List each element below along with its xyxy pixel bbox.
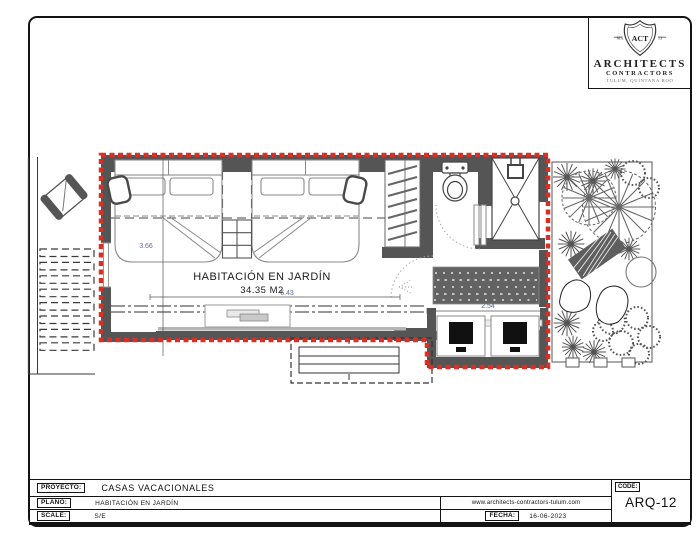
svg-text:13: 13 bbox=[658, 36, 662, 41]
stone-wall-strip bbox=[433, 267, 539, 304]
project-label: PROYECTO: bbox=[37, 483, 85, 493]
plan-value: HABITACIÓN EN JARDÍN bbox=[95, 500, 178, 507]
garden bbox=[552, 159, 660, 368]
scale-row: SCALE: S/E FECHA: 16-06-2023 bbox=[30, 510, 611, 522]
dim-vanity: 2.54 bbox=[481, 303, 495, 310]
bathroom-door bbox=[436, 205, 486, 249]
scale-value: S/E bbox=[94, 513, 106, 520]
website-text: www.architects-contractors-tulum.com bbox=[472, 500, 581, 506]
svg-text:MX: MX bbox=[617, 36, 625, 41]
door-swing-indicator bbox=[399, 280, 413, 293]
svg-text:ACT: ACT bbox=[632, 34, 649, 43]
plan-row: PLANO: HABITACIÓN EN JARDÍN www.architec… bbox=[30, 497, 611, 510]
shield-logo-icon: MX ACT 13 bbox=[608, 18, 672, 58]
toilet-icon bbox=[442, 162, 468, 201]
garden-rock bbox=[560, 280, 591, 312]
bed-right bbox=[252, 160, 367, 262]
sink bbox=[449, 322, 473, 344]
tv-console bbox=[205, 305, 290, 327]
code-label: CODE: bbox=[615, 482, 640, 492]
title-block: PROYECTO: CASAS VACACIONALES PLANO: HABI… bbox=[29, 479, 691, 525]
bed-left bbox=[107, 160, 222, 262]
scale-label: SCALE: bbox=[37, 511, 70, 521]
room-label: HABITACIÓN EN JARDÍN 34.35 M2 bbox=[193, 270, 331, 296]
date-label: FECHA: bbox=[485, 511, 519, 521]
garden-path bbox=[567, 228, 626, 280]
terrace bbox=[291, 338, 432, 383]
plan-label: PLANO: bbox=[37, 498, 71, 508]
shower bbox=[492, 158, 539, 240]
firm-subtitle: CONTRACTORS bbox=[606, 70, 674, 78]
nightstand bbox=[223, 220, 252, 258]
door-swing-arc bbox=[391, 256, 433, 298]
room-name: HABITACIÓN EN JARDÍN bbox=[193, 270, 331, 283]
deck-chair bbox=[39, 173, 89, 222]
project-value: CASAS VACACIONALES bbox=[101, 483, 214, 493]
firm-logo: MX ACT 13 ARCHITECTS CONTRACTORS TULUM, … bbox=[588, 18, 691, 89]
code-value: ARQ-12 bbox=[625, 495, 677, 510]
project-row: PROYECTO: CASAS VACACIONALES bbox=[30, 480, 611, 497]
drawing-sheet: 3.66 6.43 2.54 HABITACIÓN EN JARDÍN 34.3… bbox=[0, 0, 699, 541]
garden-rock bbox=[596, 286, 628, 324]
closet bbox=[385, 160, 420, 247]
code-box: CODE: ARQ-12 bbox=[611, 480, 690, 522]
sink bbox=[503, 322, 527, 344]
date-value: 16-06-2023 bbox=[529, 513, 566, 520]
firm-name: ARCHITECTS bbox=[594, 59, 687, 70]
garden-steps bbox=[566, 358, 635, 367]
firm-location: TULUM, QUINTANA ROO bbox=[606, 78, 673, 84]
room-area: 34.35 M2 bbox=[240, 285, 284, 296]
dim-depth: 3.66 bbox=[139, 243, 153, 250]
